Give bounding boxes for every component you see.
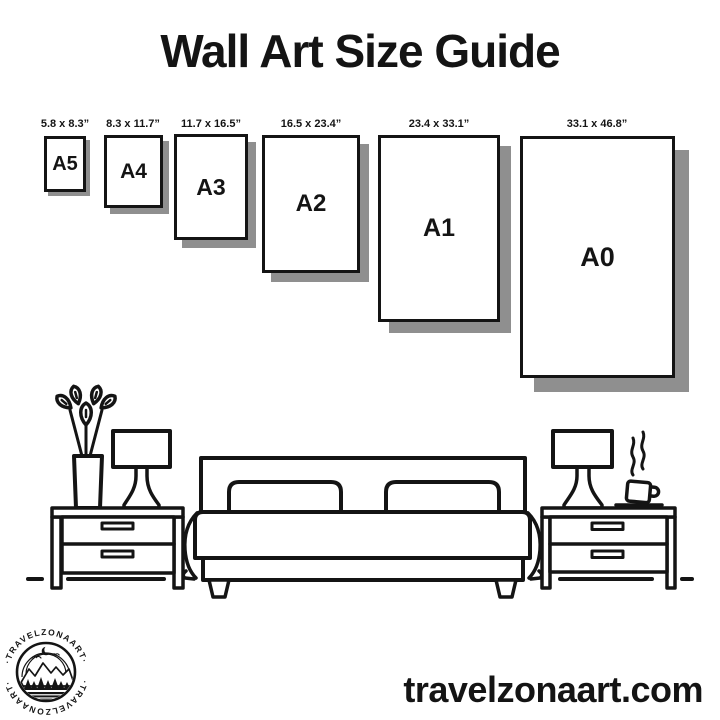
coffee-cup-icon (616, 432, 662, 505)
size-guide-poster: Wall Art Size Guide 5.8 x 8.3” 8.3 x 11.… (0, 0, 720, 720)
table-lamp-left-icon (113, 431, 170, 508)
frame-a1: A1 (378, 135, 500, 322)
size-label-a4: 8.3 x 11.7” (106, 118, 160, 130)
frame-a2: A2 (262, 135, 360, 273)
frame-a3: A3 (174, 134, 248, 240)
nightstand-left-icon (52, 508, 183, 588)
frame-a5: A5 (44, 136, 86, 192)
frame-a0: A0 (520, 136, 675, 378)
frame-code-a5: A5 (52, 153, 78, 176)
bed-leg-right (496, 580, 516, 597)
bedroom-illustration (0, 380, 720, 610)
frame-code-a0: A0 (580, 242, 615, 273)
pillow-left (229, 482, 341, 512)
nightstand-right-icon (542, 508, 675, 588)
plant-vase-icon (54, 385, 118, 508)
size-label-a0: 33.1 x 46.8” (567, 118, 628, 130)
brand-logo: ·TRAVELZONAART· ·TRAVELZONAART· (0, 626, 92, 720)
page-title: Wall Art Size Guide (0, 24, 720, 78)
frame-code-a1: A1 (423, 214, 455, 243)
steam-icon (632, 438, 634, 475)
bed-leg-left (209, 580, 229, 597)
frame-code-a2: A2 (296, 190, 327, 218)
website-url: travelzonaart.com (403, 669, 703, 711)
bed-icon (183, 458, 542, 597)
pillow-right (386, 482, 499, 512)
table-lamp-right-icon (553, 431, 612, 508)
size-label-a2: 16.5 x 23.4” (281, 118, 342, 130)
frame-a4: A4 (104, 135, 163, 208)
frame-code-a4: A4 (120, 160, 147, 184)
size-label-a5: 5.8 x 8.3” (41, 118, 89, 130)
size-label-a1: 23.4 x 33.1” (409, 118, 470, 130)
size-label-a3: 11.7 x 16.5” (181, 118, 241, 130)
frame-code-a3: A3 (196, 174, 225, 201)
